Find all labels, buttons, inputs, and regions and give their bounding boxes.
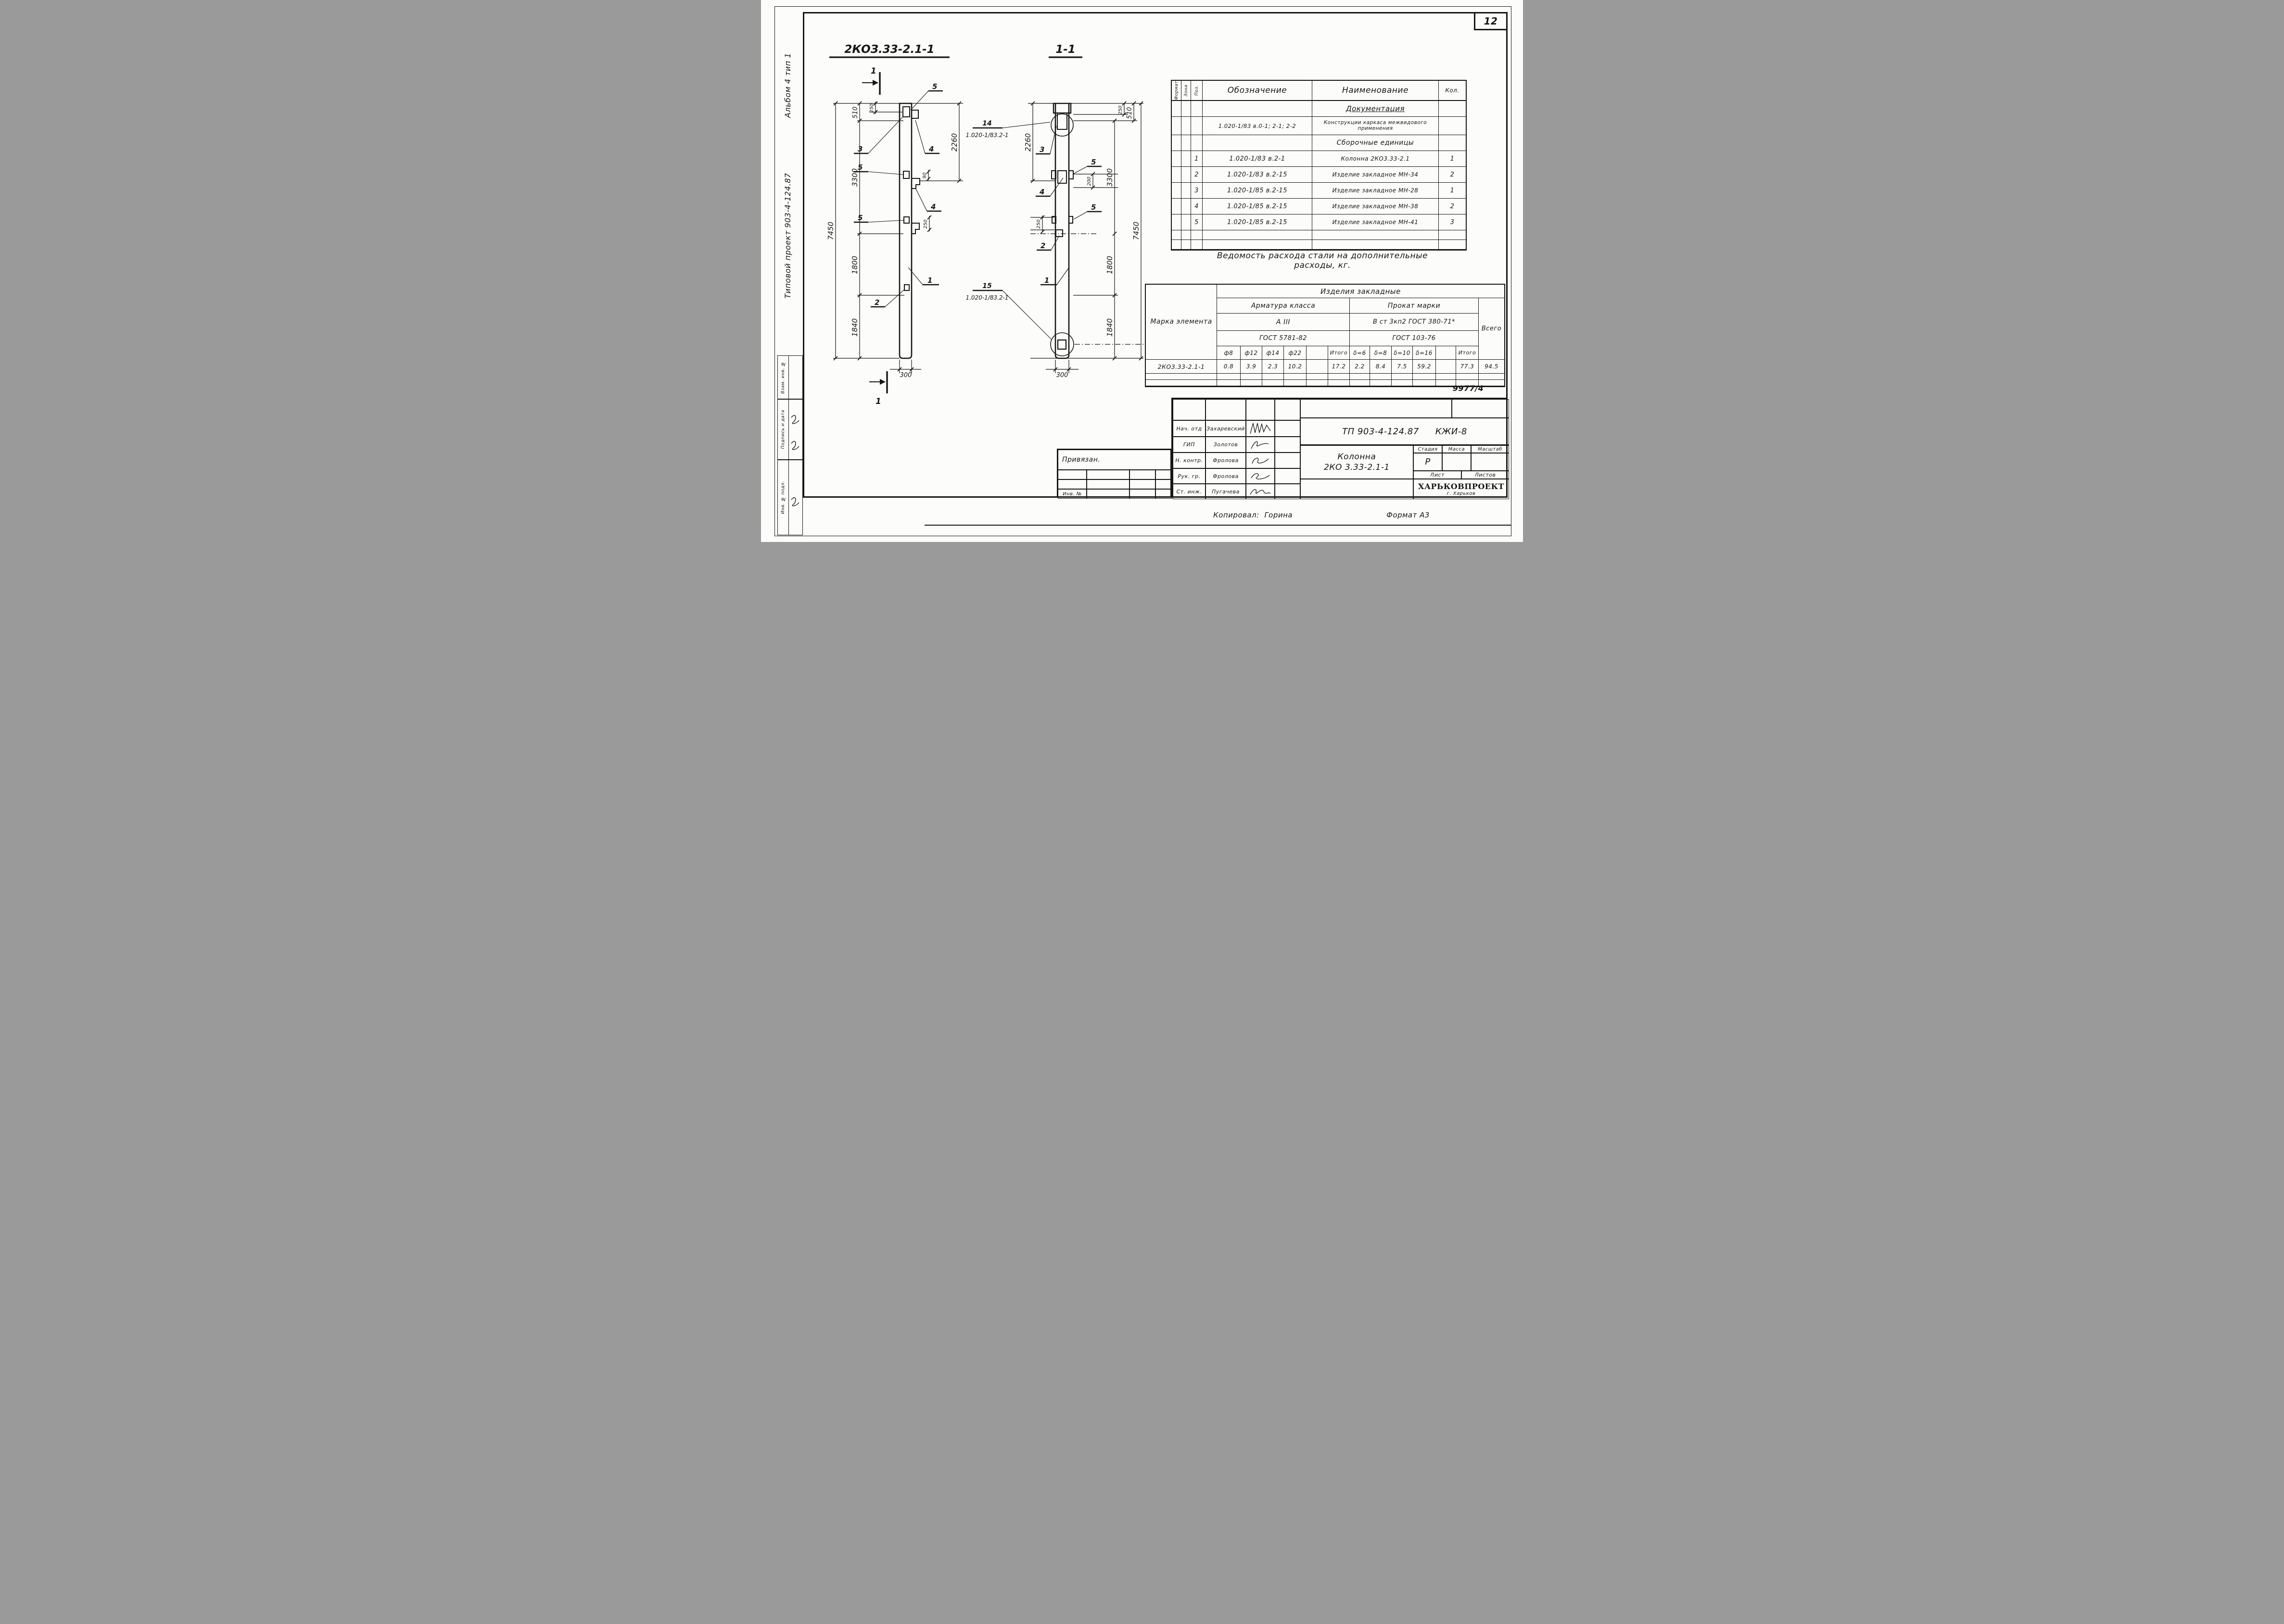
spec-row <box>1172 135 1181 151</box>
inv-label: Инв. № <box>1058 489 1087 499</box>
dim-300: 300 <box>1056 372 1068 379</box>
dim-7450: 7450 <box>826 222 835 240</box>
detail-15-number: 15 <box>982 282 992 290</box>
signature-icon <box>1247 421 1273 436</box>
steel-rebar-class: А III <box>1217 314 1350 331</box>
callout-2: 2 <box>875 298 879 307</box>
signature-cell <box>1246 437 1275 453</box>
callout-4: 4 <box>1039 188 1044 196</box>
organization-city: г. Харьков <box>1447 491 1476 496</box>
callout-5: 5 <box>858 163 863 172</box>
mass-label: Масса <box>1442 445 1471 453</box>
steel-mark-header: Марка элемента <box>1146 285 1217 360</box>
dim-250b: 250 <box>923 219 928 228</box>
dim-90: 90 <box>922 173 927 179</box>
page-number: 12 <box>1484 15 1498 27</box>
sheets-label: Листов <box>1461 471 1509 479</box>
page-number-box: 12 <box>1474 12 1508 30</box>
format-label: Формат А3 <box>1386 511 1430 519</box>
scale-value <box>1471 453 1509 471</box>
steel-row-total: 94.5 <box>1479 360 1504 374</box>
callout-3: 3 <box>1040 145 1044 154</box>
callout-5: 5 <box>1091 158 1096 166</box>
margin-box-podpis-blank <box>788 399 803 460</box>
doc-designation-cell: ТП 903-4-124.87 КЖИ-8 <box>1300 418 1509 445</box>
spec-header-pos: Поз. <box>1191 81 1203 101</box>
attached-label: Привязан. <box>1058 450 1172 470</box>
callout-2: 2 <box>1040 241 1045 250</box>
callout-4: 4 <box>928 145 934 153</box>
steel-value: 0.8 <box>1217 360 1241 374</box>
margin-project-text: Типовой проект 903-4-124.87 <box>783 154 792 317</box>
signature-cell <box>1246 420 1275 437</box>
spec-row <box>1172 183 1181 199</box>
margin-box-vzam: Взам. инв. № <box>777 355 789 399</box>
column-drawings: 2КОЗ.33-2.1-1 1-1 1 1 7450 510 250 3300 … <box>803 12 1171 435</box>
copier-strip-line <box>925 525 1511 526</box>
spec-row-empty <box>1172 240 1181 250</box>
dim-250: 250 <box>869 103 875 113</box>
callout-1: 1 <box>927 276 932 285</box>
steel-table: Марка элемента Изделия закладные Арматур… <box>1145 284 1505 387</box>
dim-3300: 3300 <box>1105 168 1114 187</box>
steel-roll-group: Прокат марки <box>1350 298 1479 314</box>
dim-250b: 250 <box>1036 219 1041 228</box>
callout-5: 5 <box>858 214 863 222</box>
signature-icon <box>789 403 802 456</box>
steel-rebar-group: Арматура класса <box>1217 298 1350 314</box>
detail-14-number: 14 <box>982 120 991 127</box>
steel-caption: Ведомость расхода стали на дополнительны… <box>1171 251 1474 270</box>
dim-2260: 2260 <box>1024 133 1032 151</box>
margin-album-text: Альбом 4 тип 1 <box>783 29 792 142</box>
dim-510: 510 <box>1126 107 1133 119</box>
sheet-label: Лист <box>1413 471 1461 479</box>
callout-3: 3 <box>858 145 863 153</box>
steel-col: ф8 <box>1217 346 1241 360</box>
signature-cell <box>1246 468 1275 484</box>
callout-5: 5 <box>932 82 937 91</box>
margin-box-vzam-blank <box>788 355 803 399</box>
signature-cell <box>1246 484 1275 499</box>
object-name-cell: Колонна 2КО 3.33-2.1-1 <box>1300 445 1413 479</box>
spec-row <box>1172 167 1181 183</box>
organization-name: ХАРЬКОВПРОЕКТ <box>1418 482 1504 491</box>
dim-1840: 1840 <box>850 318 859 337</box>
left-drawing-title: 2КОЗ.33-2.1-1 <box>844 43 934 56</box>
copied-by: Копировал: Горина <box>1213 511 1293 519</box>
cut-label-bottom: 1 <box>876 397 881 406</box>
signature-cell <box>1246 453 1275 468</box>
spec-header-format: Формат <box>1172 81 1181 101</box>
spec-header-name: Наименование <box>1312 81 1439 101</box>
spec-header-designation: Обозначение <box>1203 81 1312 101</box>
detail-15-ref: 1.020-1/83.2-1 <box>965 294 1008 301</box>
signature-icon <box>1247 438 1273 452</box>
callout-1: 1 <box>1044 276 1049 285</box>
spec-row <box>1172 101 1181 117</box>
callout-5: 5 <box>1091 203 1096 212</box>
spec-header-qty: Кол. <box>1439 81 1466 101</box>
stage-value: Р <box>1413 453 1442 471</box>
dim-300: 300 <box>900 372 912 379</box>
dim-7450: 7450 <box>1132 222 1141 240</box>
margin-box-podpis: Подпись и дата <box>777 399 789 460</box>
dim-1800: 1800 <box>1105 256 1114 274</box>
title-block: Нач. отд Захаревский ГИП Золотов Н. конт… <box>1171 398 1508 498</box>
spec-row <box>1172 214 1181 230</box>
margin-box-inv: Инв. № подл. <box>777 460 789 535</box>
mass-value <box>1442 453 1471 471</box>
signature-icon <box>1247 485 1273 498</box>
scale-label: Масштаб <box>1471 445 1509 453</box>
steel-span-header: Изделия закладные <box>1217 285 1504 298</box>
callout-4: 4 <box>930 202 936 211</box>
cut-label-top: 1 <box>871 66 876 76</box>
spec-row <box>1172 117 1181 135</box>
signature-icon <box>1247 454 1273 467</box>
steel-row-mark: 2КО3.33-2.1-1 <box>1146 360 1217 374</box>
role-cell: Нач. отд <box>1173 420 1205 437</box>
stage-label: Стадия <box>1413 445 1442 453</box>
doc-code: КЖИ-8 <box>1435 427 1467 437</box>
organization-cell: ХАРЬКОВПРОЕКТ г. Харьков <box>1413 479 1509 499</box>
doc-number: 9977/4 <box>1434 384 1502 393</box>
steel-roll-class: В ст 3кп2 ГОСТ 380-71* <box>1350 314 1479 331</box>
spec-row <box>1172 199 1181 214</box>
signature-icon <box>789 483 802 512</box>
spec-row <box>1172 151 1181 167</box>
dim-1800: 1800 <box>850 256 859 274</box>
doc-designation: ТП 903-4-124.87 <box>1342 427 1419 437</box>
signature-icon <box>1247 469 1273 483</box>
attached-block: Привязан. Инв. № <box>1057 449 1171 498</box>
name-cell: Захаревский <box>1205 420 1246 437</box>
steel-roll-gost: ГОСТ 103-76 <box>1350 331 1479 346</box>
steel-total-header: Всего <box>1479 298 1504 360</box>
spec-header-zone: Зона <box>1181 81 1191 101</box>
dim-2260: 2260 <box>950 133 959 151</box>
spec-table: Формат Зона Поз. Обозначение Наименовани… <box>1171 80 1467 251</box>
dim-510: 510 <box>852 107 859 119</box>
dim-250: 250 <box>1118 105 1123 114</box>
detail-14-ref: 1.020-1/83.2-1 <box>965 132 1008 138</box>
margin-box-inv-blank <box>788 460 803 535</box>
steel-rebar-gost: ГОСТ 5781-82 <box>1217 331 1350 346</box>
dim-1840: 1840 <box>1105 318 1114 337</box>
blueprint-sheet: 12 Альбом 4 тип 1 Типовой проект 903-4-1… <box>761 0 1523 542</box>
right-drawing-title: 1-1 <box>1055 43 1076 56</box>
spec-row-empty <box>1172 230 1181 240</box>
dim-200: 200 <box>1087 176 1092 186</box>
